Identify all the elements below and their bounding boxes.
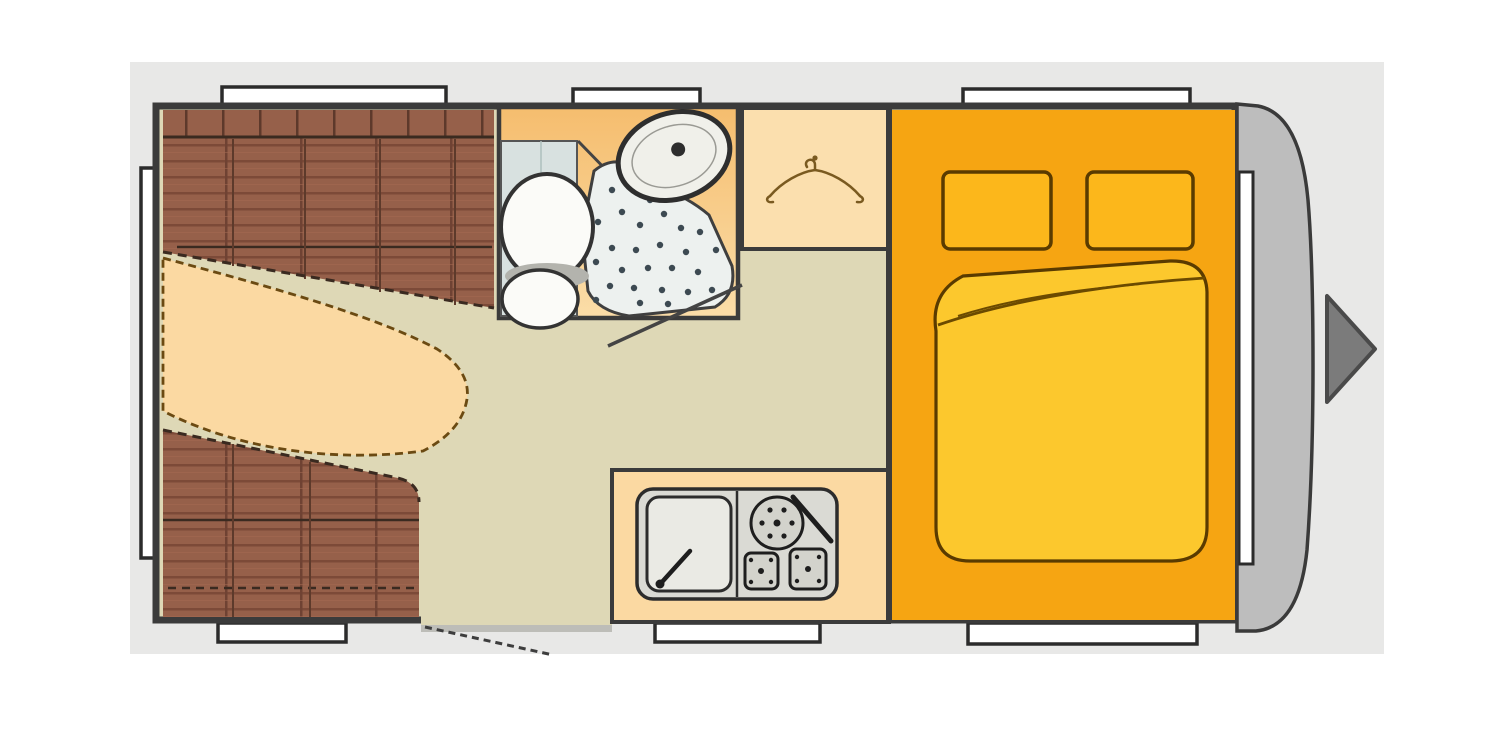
bathroom	[499, 97, 742, 346]
caravan-floorplan-svg	[0, 0, 1500, 738]
floorplan-stage	[0, 0, 1500, 738]
wardrobe-box	[742, 108, 889, 249]
kitchen	[612, 470, 889, 622]
bench-top-backrest	[163, 110, 494, 137]
wardrobe	[742, 108, 889, 249]
bedroom	[886, 107, 1235, 622]
window-top-left	[222, 87, 446, 105]
pillow-left	[943, 172, 1051, 249]
kitchen-sink-icon	[647, 497, 731, 591]
window-bottom-left	[218, 623, 346, 642]
bedroom-divider-wall	[886, 107, 892, 622]
pillow-right	[1087, 172, 1193, 249]
window-kitchen	[655, 623, 820, 642]
front-window	[1239, 172, 1253, 564]
window-bedroom	[968, 623, 1197, 644]
duvet	[935, 261, 1207, 561]
